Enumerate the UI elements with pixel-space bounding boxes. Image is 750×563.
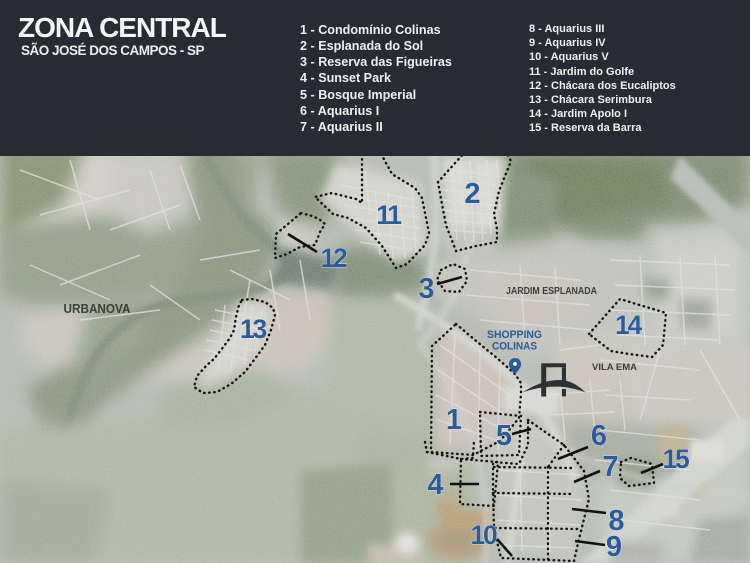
svg-text:URBANOVA: URBANOVA (64, 301, 132, 316)
svg-text:COLINAS: COLINAS (492, 341, 537, 353)
svg-text:12: 12 (320, 243, 347, 273)
svg-text:2: 2 (464, 178, 480, 210)
svg-text:4: 4 (427, 469, 443, 501)
svg-text:SHOPPING: SHOPPING (487, 329, 542, 341)
svg-text:5: 5 (496, 420, 512, 452)
svg-text:15: 15 (662, 444, 689, 474)
svg-text:10: 10 (470, 520, 497, 550)
svg-text:7: 7 (602, 451, 618, 483)
svg-text:13: 13 (240, 314, 267, 344)
svg-text:VILA EMA: VILA EMA (592, 362, 637, 373)
svg-text:JARDIM ESPLANADA: JARDIM ESPLANADA (506, 286, 597, 297)
svg-text:6: 6 (591, 420, 607, 452)
svg-text:1: 1 (446, 404, 462, 436)
svg-text:9: 9 (606, 531, 622, 563)
svg-text:3: 3 (418, 273, 434, 305)
svg-text:14: 14 (615, 310, 643, 340)
svg-text:11: 11 (376, 200, 401, 230)
